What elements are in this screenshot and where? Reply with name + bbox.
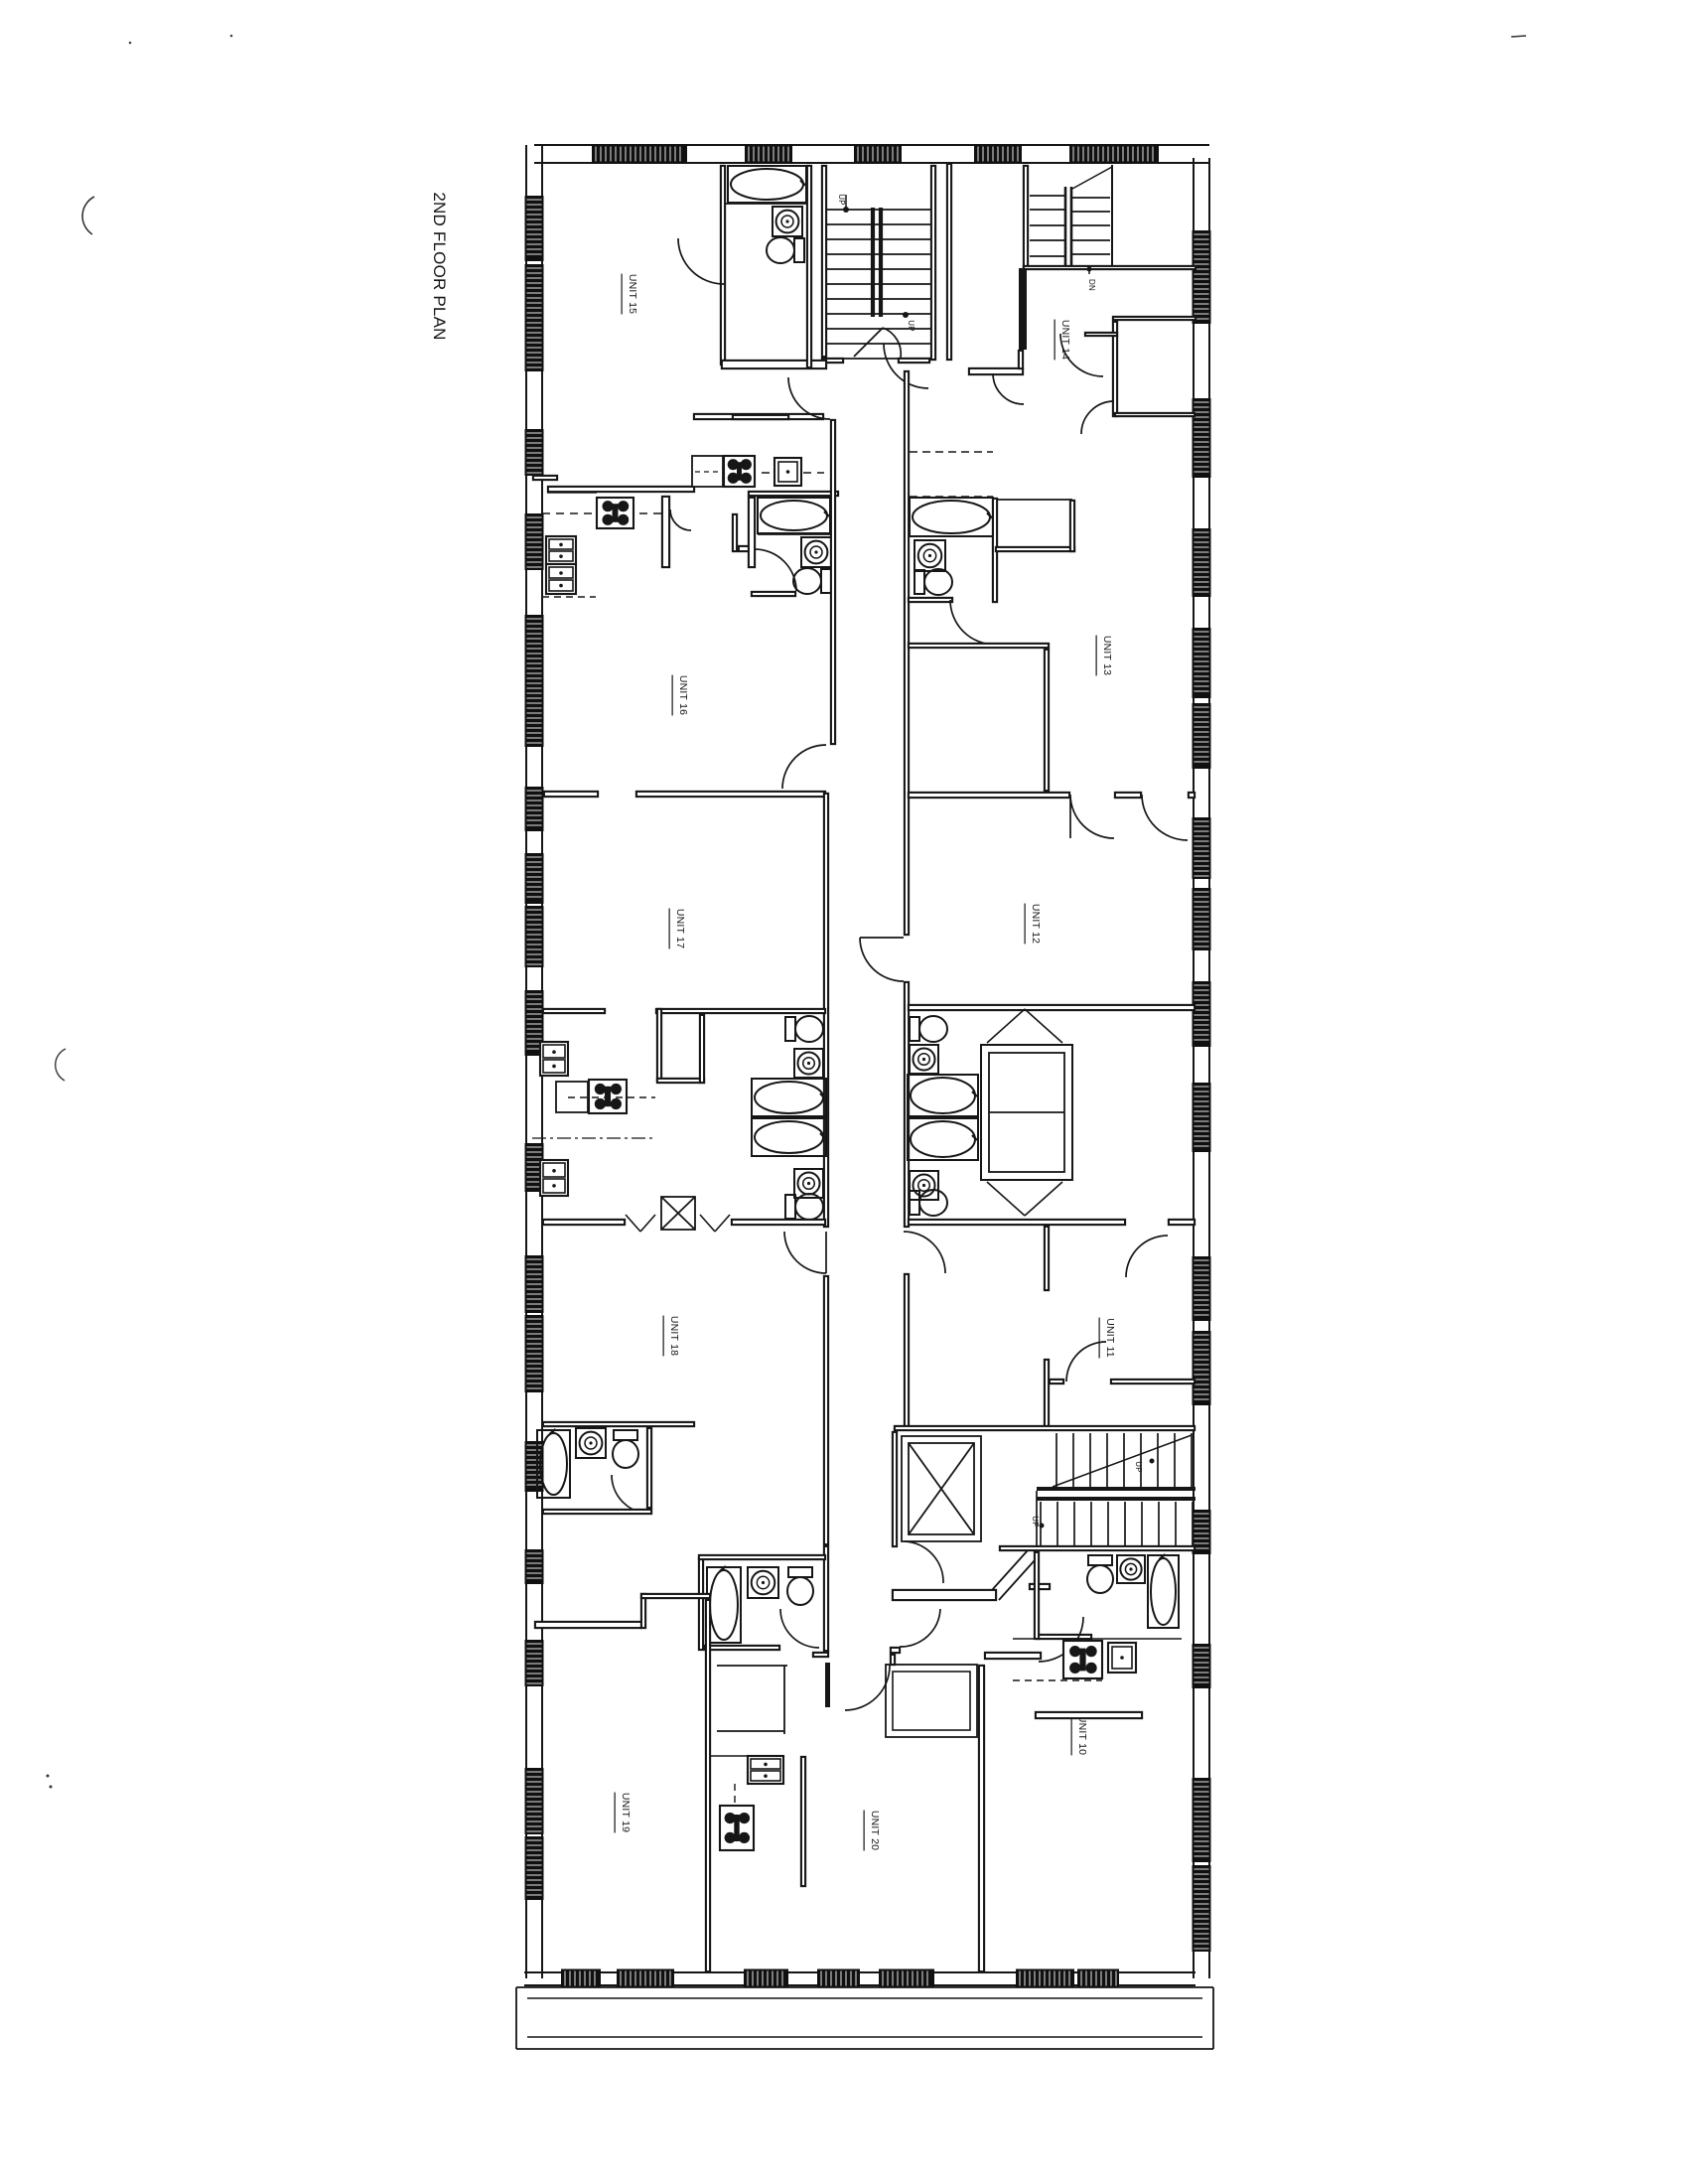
svg-text:2ND FLOOR PLAN: 2ND FLOOR PLAN bbox=[430, 192, 449, 340]
svg-text:UNIT 20: UNIT 20 bbox=[869, 1811, 881, 1850]
svg-text:UNIT 18: UNIT 18 bbox=[668, 1316, 680, 1356]
svg-text:UNIT 16: UNIT 16 bbox=[677, 675, 689, 715]
svg-text:UNIT 10: UNIT 10 bbox=[1076, 1715, 1088, 1755]
svg-text:UP: UP bbox=[907, 320, 915, 332]
svg-text:UNIT 19: UNIT 19 bbox=[620, 1793, 632, 1832]
svg-text:UP: UP bbox=[1134, 1461, 1143, 1473]
svg-text:UNIT 17: UNIT 17 bbox=[674, 909, 686, 948]
svg-text:UNIT 13: UNIT 13 bbox=[1101, 636, 1113, 675]
svg-text:UNIT 11: UNIT 11 bbox=[1104, 1318, 1116, 1358]
svg-text:UP: UP bbox=[1031, 1516, 1040, 1528]
svg-text:UNIT 12: UNIT 12 bbox=[1030, 904, 1042, 944]
svg-text:DN: DN bbox=[1087, 279, 1096, 291]
svg-text:UNIT 15: UNIT 15 bbox=[627, 274, 638, 314]
svg-text:UP: UP bbox=[837, 194, 846, 206]
